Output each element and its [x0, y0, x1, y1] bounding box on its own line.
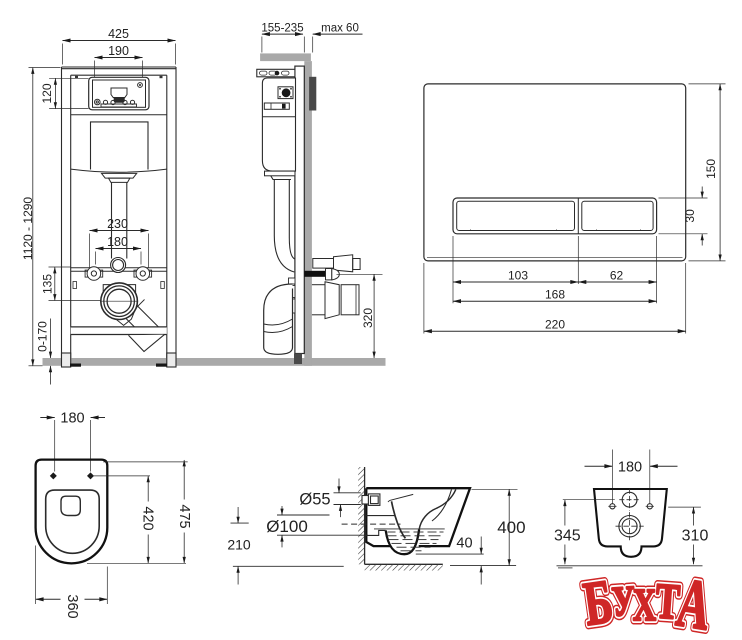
svg-text:320: 320: [361, 308, 375, 328]
svg-text:425: 425: [108, 27, 129, 41]
svg-text:150: 150: [704, 159, 718, 179]
svg-text:190: 190: [108, 44, 129, 58]
svg-text:168: 168: [545, 288, 565, 302]
svg-text:210: 210: [227, 537, 251, 553]
svg-text:345: 345: [554, 528, 581, 545]
svg-text:Ø55: Ø55: [299, 490, 330, 508]
svg-text:180: 180: [618, 460, 642, 476]
svg-text:40: 40: [456, 536, 472, 552]
svg-text:62: 62: [610, 269, 624, 283]
svg-text:220: 220: [545, 318, 565, 332]
svg-text:Х: Х: [633, 579, 657, 630]
svg-text:400: 400: [497, 518, 525, 537]
svg-text:180: 180: [107, 235, 128, 249]
svg-text:0-170: 0-170: [36, 321, 50, 352]
svg-text:Ø100: Ø100: [266, 517, 308, 536]
svg-text:360: 360: [64, 594, 80, 618]
svg-text:103: 103: [508, 269, 528, 283]
svg-text:1120 - 1290: 1120 - 1290: [21, 197, 35, 260]
svg-text:max 60: max 60: [321, 23, 359, 35]
svg-text:30: 30: [683, 209, 697, 223]
svg-text:155-235: 155-235: [261, 23, 303, 35]
svg-text:475: 475: [176, 504, 192, 528]
svg-text:230: 230: [107, 217, 128, 231]
svg-text:420: 420: [140, 506, 156, 530]
svg-text:120: 120: [40, 83, 54, 103]
svg-text:135: 135: [41, 274, 55, 294]
svg-text:310: 310: [682, 528, 709, 545]
svg-text:180: 180: [60, 411, 84, 427]
